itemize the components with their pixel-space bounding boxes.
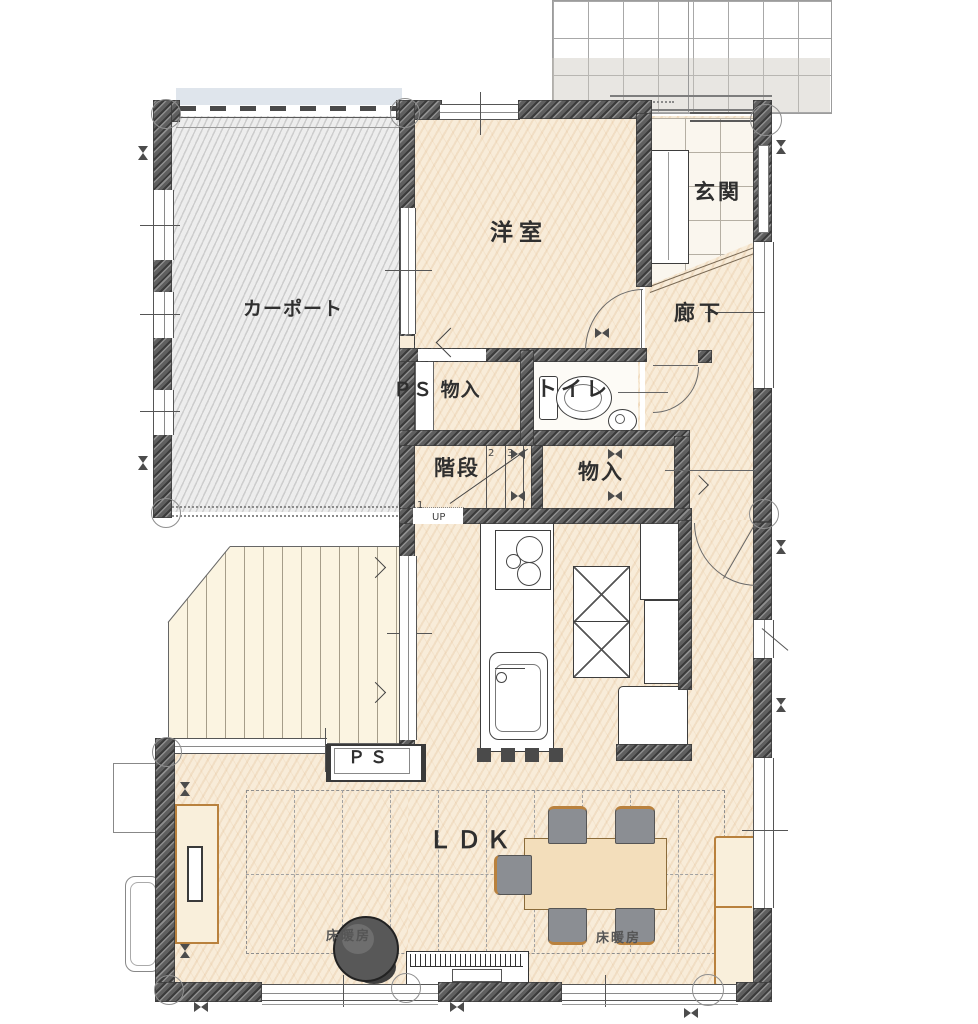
deck-edge-left: [168, 622, 169, 744]
window-tick-left-3: [140, 411, 180, 412]
window-tick-deck-bottom: [325, 728, 326, 772]
dining-chair-top-1: [548, 806, 587, 844]
wall-right-mid-3: [753, 658, 772, 758]
wall-stairs-closet-divider: [531, 445, 543, 509]
dining-chair-left: [494, 855, 532, 895]
window-tick-bottom-1: [343, 975, 344, 1007]
piano-keys: [410, 954, 523, 967]
window-tick-left-2: [140, 314, 180, 315]
carport-label: カーポート: [243, 300, 343, 319]
floor-heating-label-right: 床暖房: [596, 932, 641, 945]
carport-beam-line: [176, 127, 402, 128]
carport-gate-dashes: [180, 106, 398, 111]
slide-door-symbol: [608, 491, 622, 501]
column-marker: [151, 498, 181, 528]
floor-plan: カーポート 洋室 玄関 廊下 ＰＳ 物入 トイレ 階段 物入 ＬＤＫ ＰＳ 床暖…: [0, 0, 978, 1024]
window-tick-bottom-2: [605, 975, 606, 1007]
column-marker: [391, 973, 421, 1003]
carport-western-window: [400, 208, 416, 334]
counter-leg-2: [501, 748, 515, 762]
floor-heating-grid-line: [678, 790, 679, 952]
tall-cabinet-upper: [573, 566, 630, 623]
floor-heating-grid-line: [294, 790, 295, 952]
counter-leg-1: [477, 748, 491, 762]
wall-toilet-left: [520, 350, 534, 446]
window-tick-left-1: [140, 225, 180, 226]
ldk-deck-sliding-door: [175, 738, 327, 754]
stairs-label: 階段: [434, 458, 480, 479]
floor-heating-label-left: 床暖房: [326, 930, 371, 943]
dining-chair-top-2: [615, 806, 655, 844]
vent-symbol: [776, 698, 786, 712]
stove-burner-3: [517, 562, 541, 586]
stair-number-3: 3: [507, 449, 513, 459]
water-heater-inner: [130, 882, 156, 966]
wall-mid-horizontal: [399, 430, 690, 446]
carport-boundary-dotted-1: [168, 506, 406, 508]
wall-toilet-door-nub: [698, 350, 712, 363]
vent-symbol: [180, 944, 190, 958]
floor-heating-grid-line: [438, 790, 439, 952]
slide-door-symbol: [608, 449, 622, 459]
faucet-knob-icon: [496, 672, 507, 683]
wall-top-western-room: [518, 100, 652, 119]
vent-symbol: [138, 456, 148, 470]
wall-fridge-nook-bottom: [616, 744, 692, 761]
pipe-space-label: ＰＳ: [348, 750, 392, 767]
window-tick-western: [385, 270, 432, 271]
window-tick-ldk-right: [742, 830, 788, 831]
sill-line-1: [262, 1004, 438, 1005]
wall-western-entrance-divider: [636, 113, 652, 287]
wall-bottom-c: [736, 982, 772, 1002]
hallway-label: 廊下: [674, 303, 724, 324]
entrance-sliding-door-line-1: [690, 112, 756, 114]
porch-step-line-1: [610, 95, 772, 97]
sofa: [714, 836, 758, 986]
closet-label: 物入: [578, 462, 624, 483]
vent-symbol: [180, 782, 190, 796]
entrance-sliding-door-line-2: [690, 120, 756, 122]
right-wall-window-hall: [753, 242, 774, 388]
stair-tread-line-2: [505, 446, 506, 508]
left-wall-window-3: [153, 390, 174, 435]
entrance-sidelight-window: [758, 145, 769, 233]
vent-symbol: [684, 1008, 698, 1018]
column-marker: [750, 104, 782, 136]
floor-heating-grid-line: [486, 790, 487, 952]
piano-music-stand: [452, 969, 502, 982]
western-room-door-leaf: [641, 289, 642, 350]
entrance-label: 玄関: [694, 182, 742, 203]
deck-sliding-door: [399, 556, 417, 740]
vent-symbol: [450, 1002, 464, 1012]
faucet-icon: [495, 668, 525, 669]
window-tick-top: [480, 92, 481, 135]
tall-cabinet-lower: [573, 621, 630, 678]
carport-roof-band: [176, 88, 402, 105]
deck-edge-top: [230, 546, 406, 547]
wood-deck: [168, 546, 406, 744]
column-marker: [390, 98, 420, 128]
toilet-leader-line: [618, 392, 668, 393]
counter-leg-3: [525, 748, 539, 762]
toilet-label: トイレ: [536, 379, 611, 400]
stairs-up-label: UP: [432, 513, 445, 523]
carport-boundary-dotted-2: [168, 515, 406, 517]
refrigerator: [618, 686, 688, 750]
stair-number-2: 2: [488, 449, 494, 459]
right-wall-vent-window: [753, 620, 774, 658]
left-wall-window-2: [153, 292, 174, 338]
wall-kitchen-right: [678, 520, 692, 690]
vent-symbol: [194, 1002, 208, 1012]
carport-edge-line: [178, 117, 400, 118]
stair-number-1: 1: [417, 501, 423, 511]
western-room-label: 洋室: [490, 222, 548, 245]
dining-chair-bottom-1: [548, 908, 587, 945]
ps-closet-label: ＰＳ 物入: [393, 381, 481, 400]
dining-table: [524, 838, 667, 910]
toilet-door-leaf: [653, 365, 698, 366]
right-wall-window-ldk: [753, 758, 774, 908]
column-marker: [154, 975, 184, 1005]
shoe-cabinet-divider: [668, 152, 669, 260]
ldk-label: ＬＤＫ: [428, 828, 515, 852]
hand-wash-spout-icon: [615, 414, 625, 424]
column-marker: [749, 499, 779, 529]
shoe-cabinet: [651, 150, 689, 264]
door-stop-symbol: [595, 328, 609, 338]
sofa-cushion-divider: [716, 906, 752, 908]
vent-symbol: [776, 540, 786, 554]
wall-left-ldk: [155, 738, 175, 1002]
wall-bottom-b: [438, 982, 562, 1002]
slide-door-symbol: [511, 491, 525, 501]
vent-symbol: [138, 146, 148, 160]
closet-leader-line: [665, 470, 757, 471]
counter-leg-4: [549, 748, 563, 762]
tv: [187, 846, 203, 902]
wall-closet-right: [674, 436, 690, 509]
column-marker: [152, 737, 182, 767]
column-marker: [692, 974, 724, 1006]
column-marker: [151, 99, 181, 129]
vent-symbol: [776, 140, 786, 154]
